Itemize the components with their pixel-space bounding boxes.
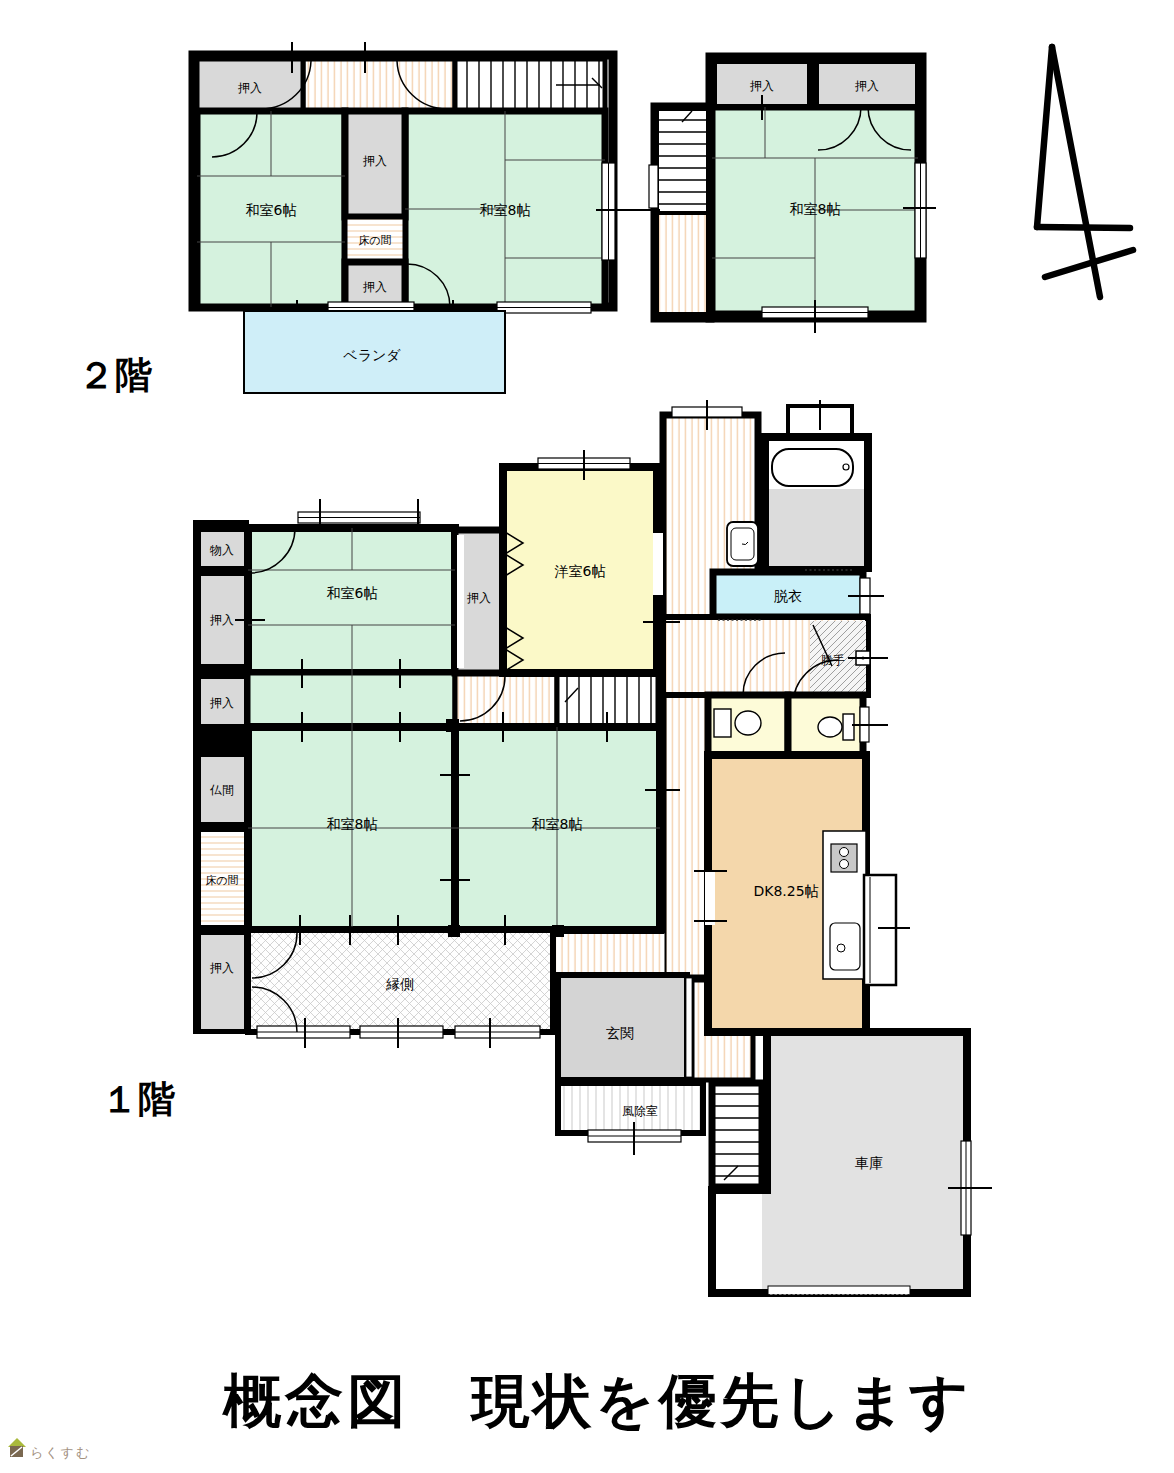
page-title: 概念図 現状を優先します xyxy=(221,1367,972,1435)
1f-garage-door xyxy=(768,1286,910,1295)
1f-dk-west-opening xyxy=(705,870,715,925)
watermark: らくすむ xyxy=(8,1438,91,1460)
1f-bath-floor xyxy=(769,489,864,566)
1f-dk-bay-window xyxy=(864,875,896,985)
2f-stairs xyxy=(455,59,605,111)
1f-genkan-label: 玄関 xyxy=(606,1025,634,1041)
1f-datsui-label: 脱衣 xyxy=(774,588,802,604)
1f-tokonoma-label: 床の間 xyxy=(205,874,238,887)
floor-1f: 物入 押入 押入 仏間 床の間 押入 和室6帖 押入 洋室6帖 脱衣 勝手 和室… xyxy=(193,400,992,1295)
1f-closet-l2-label: 押入 xyxy=(209,696,234,710)
1f-closet-l3 xyxy=(200,934,245,1030)
2f-closet-middle-lower-label: 押入 xyxy=(362,280,387,294)
1f-fujyoshitsu-label: 風除室 xyxy=(622,1104,658,1118)
1f-shako-label: 車庫 xyxy=(855,1155,883,1171)
2f-closet-topleft-label: 押入 xyxy=(237,81,262,95)
watermark-text: らくすむ xyxy=(30,1445,91,1460)
1f-garage-landing xyxy=(716,1194,762,1289)
1f-corridor-bend xyxy=(553,933,665,977)
2f-right-stairs xyxy=(657,109,708,213)
floorplan-canvas: 押入 和室6帖 押入 床の間 押入 和室8帖 ベランダ 押入 押入 xyxy=(0,0,1174,1473)
1f-butsuma-label: 仏間 xyxy=(209,783,234,797)
2f-right-closet-2-label: 押入 xyxy=(854,79,879,93)
1f-left-closet-column xyxy=(193,520,249,1034)
1f-yoshitsu-label: 洋室6帖 xyxy=(555,563,606,579)
1f-closet-l1-label: 押入 xyxy=(209,613,234,627)
1f-kitchen-counter xyxy=(823,831,866,979)
2f-closet-middle-upper-label: 押入 xyxy=(362,154,387,168)
1f-toilet-right-icon xyxy=(818,714,854,740)
floor-2f-title: ２階 xyxy=(78,354,153,397)
1f-washitsu8-left-label: 和室8帖 xyxy=(327,816,378,832)
building-2f-left: 押入 和室6帖 押入 床の間 押入 和室8帖 ベランダ xyxy=(193,42,630,393)
1f-genkan-step xyxy=(686,978,692,1077)
1f-katte-label: 勝手 xyxy=(821,653,845,667)
1f-monoire-label: 物入 xyxy=(209,543,234,557)
1f-closet-middle-label: 押入 xyxy=(466,591,491,605)
1f-washbasin-icon xyxy=(727,522,758,566)
2f-washitsu6-label: 和室6帖 xyxy=(246,202,297,218)
2f-tokonoma-label: 床の間 xyxy=(358,234,391,247)
2f-right-closet-1-label: 押入 xyxy=(749,79,774,93)
1f-washitsu8-right-label: 和室8帖 xyxy=(532,816,583,832)
2f-washitsu8-right-label: 和室8帖 xyxy=(790,201,841,217)
building-2f-right: 押入 押入 和室8帖 xyxy=(626,57,936,333)
1f-bathtub-icon xyxy=(772,449,853,486)
1f-mid-hallway xyxy=(455,673,557,727)
rakusumu-house-icon xyxy=(8,1438,26,1457)
1f-closet-l3-label: 押入 xyxy=(209,961,234,975)
1f-entry-stairs xyxy=(712,1083,762,1187)
2f-washitsu8-left-label: 和室8帖 xyxy=(480,202,531,218)
2f-hallway xyxy=(303,59,455,111)
1f-engawa-label: 縁側 xyxy=(386,976,414,992)
floorplan-svg: 押入 和室6帖 押入 床の間 押入 和室8帖 ベランダ 押入 押入 xyxy=(0,0,1174,1473)
1f-closet-middle-door xyxy=(457,535,464,668)
1f-dk-label: DK8.25帖 xyxy=(753,883,818,899)
2f-veranda-label: ベランダ xyxy=(343,347,401,363)
1f-yoshitsu-opening xyxy=(653,533,663,595)
north-arrow-icon xyxy=(1037,47,1133,297)
2f-right-hallway xyxy=(657,213,708,314)
floor-1f-title: １階 xyxy=(101,1078,176,1121)
1f-washitsu6-label: 和室6帖 xyxy=(327,585,378,601)
